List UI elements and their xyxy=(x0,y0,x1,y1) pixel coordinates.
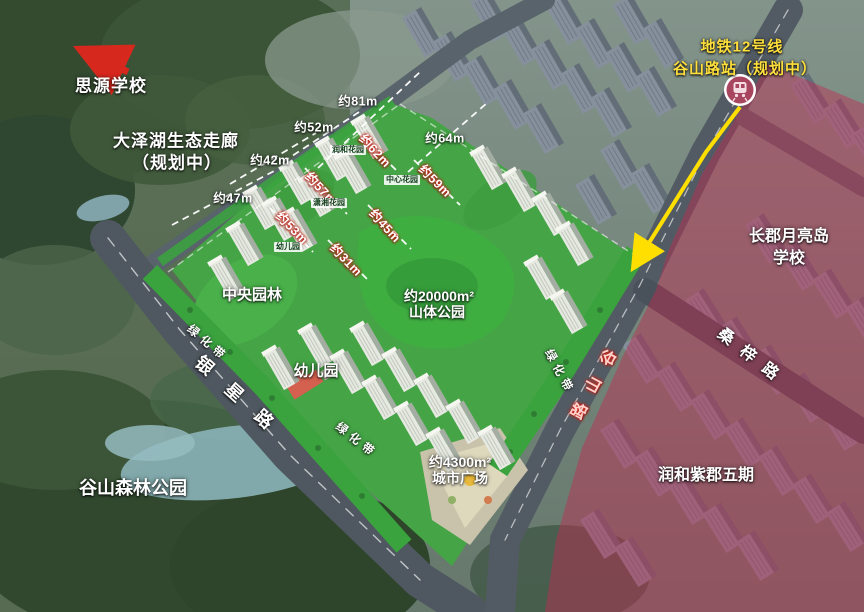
aerial-scene xyxy=(0,0,864,612)
aerial-site-plan: 思源学校 大泽湖生态走廊 （规划中） 地铁12号线 谷山路站（规划中） 长郡月亮… xyxy=(0,0,864,612)
metro-train-icon xyxy=(724,74,756,106)
